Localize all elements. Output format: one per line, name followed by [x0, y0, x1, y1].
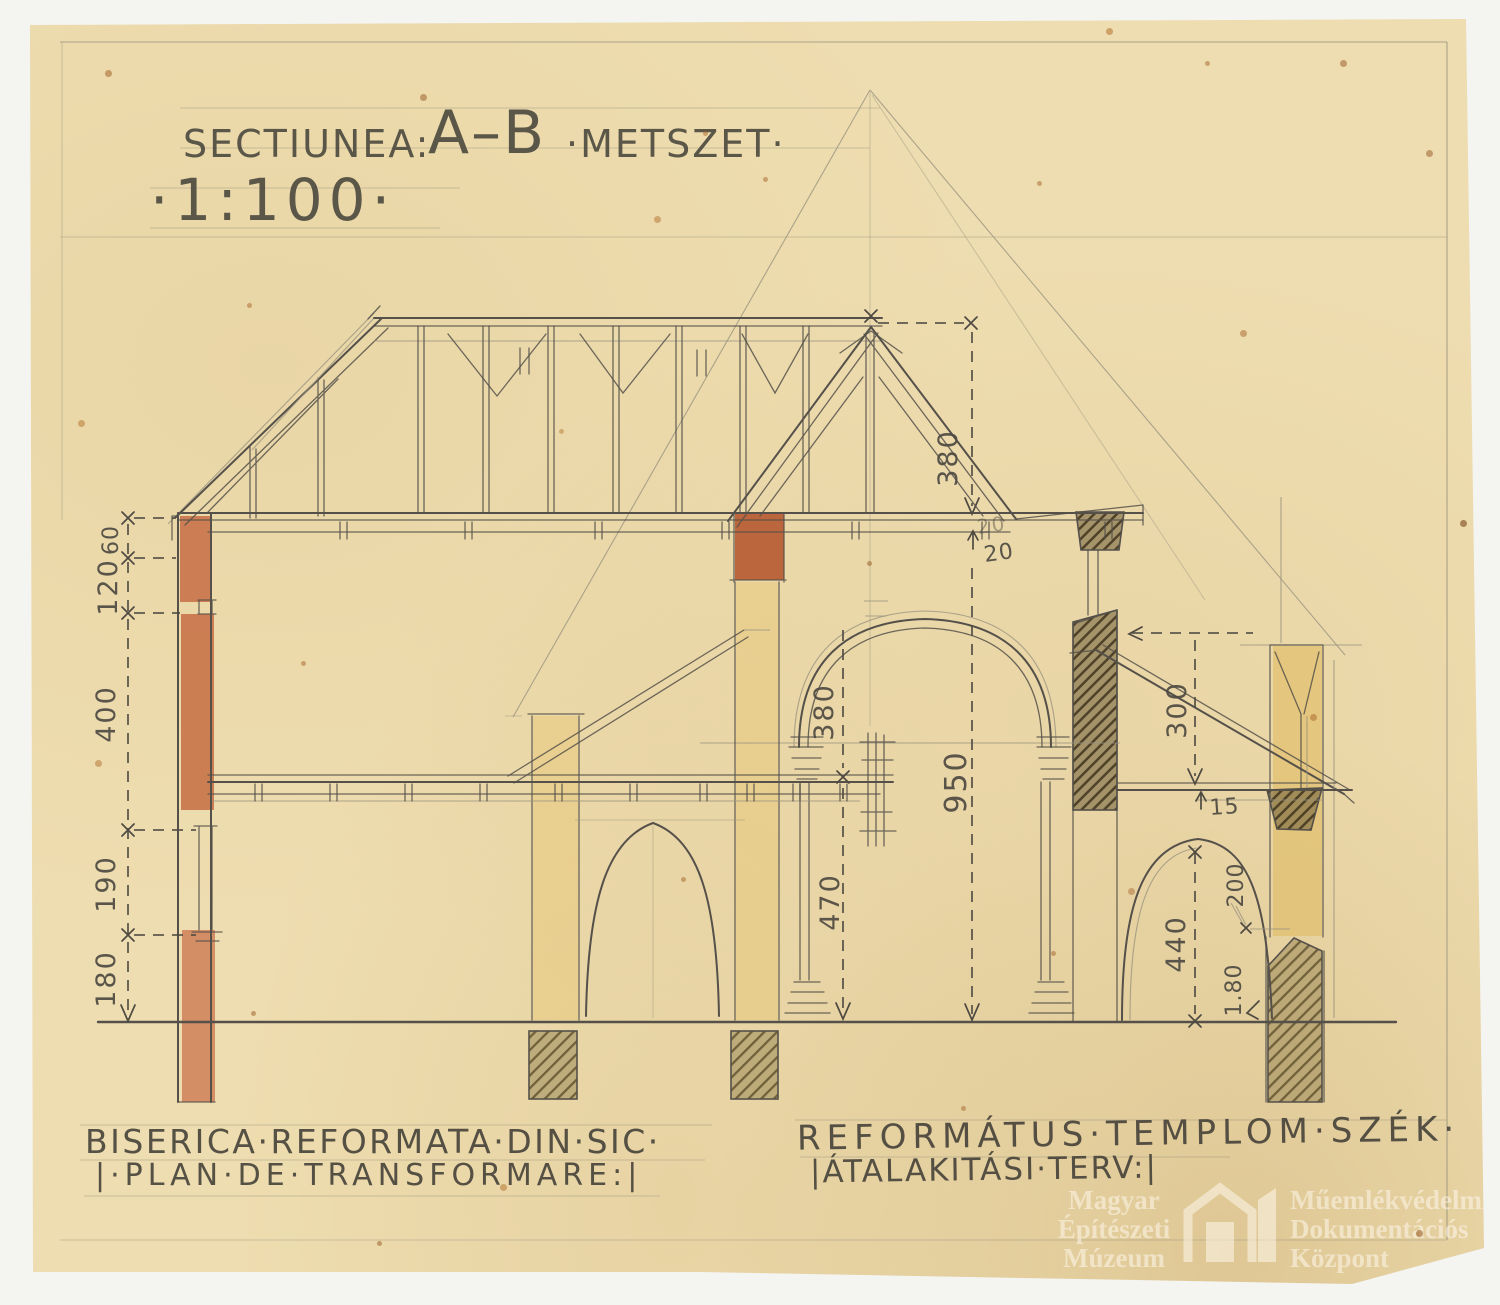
dim-nave-380: 380 [809, 683, 840, 741]
dim-left-190: 190 [91, 855, 122, 913]
dim-roof-380: 380 [933, 429, 964, 487]
left-wall-wash-top [180, 516, 211, 602]
dim-aisle-300: 300 [1162, 681, 1193, 739]
dim-left-180: 180 [91, 950, 122, 1008]
watermark-museum: Magyar Építészeti Múzeum [1048, 1186, 1180, 1273]
dim-left-120: 120 [93, 558, 124, 616]
watermark-center-line3: Központ [1290, 1244, 1475, 1273]
dim-nave-950: 950 [939, 750, 974, 813]
caption-romanian-line1: BISERICA·REFORMATA·DIN·SIC· [85, 1122, 661, 1161]
dim-nave-470: 470 [815, 873, 846, 931]
title-scale: ·1:100· [150, 166, 396, 234]
watermark-museum-line1: Magyar [1048, 1186, 1180, 1215]
right-wall-pier-hatch [1268, 938, 1322, 1102]
roof-truss [168, 306, 1143, 539]
watercolor-washes [180, 514, 1322, 1102]
foxing-spots [0, 0, 3, 3]
drawing-sheet: 60 120 400 190 180 380 20 20 950 380 470… [0, 0, 1500, 1305]
hatched-masonry [529, 512, 1322, 1102]
dim-aisle-200: 200 [1224, 863, 1249, 908]
watermark-center: Műemlékvédelmi Dokumentációs Központ [1290, 1186, 1475, 1273]
aisle-pier-hatch [1073, 610, 1117, 810]
footing-left [529, 1031, 577, 1099]
dim-left-400: 400 [91, 685, 122, 743]
watermark-museum-line3: Múzeum [1048, 1244, 1180, 1273]
gallery-column-left-wash [533, 716, 578, 1020]
dim-left-60: 60 [99, 525, 124, 555]
watermark-center-line1: Műemlékvédelmi [1290, 1186, 1475, 1215]
caption-romanian-line2: |·PLAN·DE·TRANSFORMARE:| [95, 1158, 642, 1193]
dim-aisle-180: 1.80 [1222, 964, 1247, 1017]
title-sectiunea: SECTIUNEA: [183, 122, 430, 166]
capital-block [1076, 512, 1124, 550]
title-metszet: ·METSZET· [566, 122, 786, 166]
museum-logo-icon [1188, 1188, 1276, 1262]
watermark-museum-line2: Építészeti [1048, 1215, 1180, 1244]
dim-aisle-440: 440 [1161, 915, 1192, 973]
dim-beam-15: 15 [1209, 794, 1241, 821]
left-wall-wash-mid [181, 614, 214, 810]
dim-eaves-20a: 20 [975, 511, 1008, 539]
title-section-letters: A–B [428, 98, 546, 168]
watermark-center-line2: Dokumentációs [1290, 1215, 1475, 1244]
center-pier-red-block [735, 514, 784, 580]
dim-eaves-20b: 20 [982, 539, 1015, 568]
footing-right [731, 1031, 778, 1099]
spire-sketch [505, 90, 1345, 726]
